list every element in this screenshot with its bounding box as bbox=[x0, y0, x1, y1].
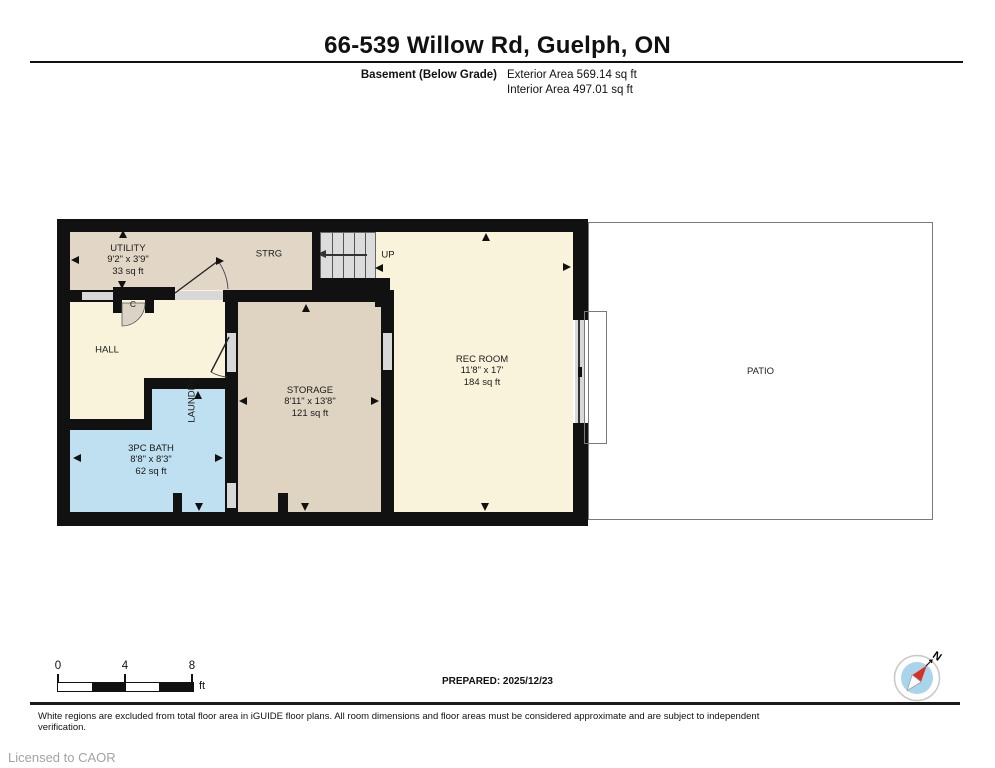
room-dims: 11'8" x 17' bbox=[456, 365, 508, 376]
dim-arrow-left-icon bbox=[239, 397, 247, 405]
closet-label: C bbox=[130, 299, 136, 309]
footer-divider bbox=[30, 702, 960, 705]
scale-tick-4: 4 bbox=[115, 660, 135, 672]
dim-arrow-up-icon bbox=[482, 233, 490, 241]
dim-arrow-left-icon bbox=[375, 264, 383, 272]
interior-area: Interior Area 497.01 sq ft bbox=[507, 84, 633, 96]
room-name: STORAGE bbox=[284, 385, 335, 396]
room-name: 3PC BATH bbox=[128, 443, 174, 454]
storage-door-arc bbox=[211, 372, 227, 377]
room-dims: 8'8" x 8'3" bbox=[128, 454, 174, 465]
room-area: 62 sq ft bbox=[128, 466, 174, 477]
dim-arrow-down-icon bbox=[301, 503, 309, 511]
disclaimer-text: White regions are excluded from total fl… bbox=[38, 711, 768, 733]
room-name: UTILITY bbox=[107, 243, 149, 254]
license-text: Licensed to CAOR bbox=[8, 750, 116, 765]
dim-arrow-up-icon bbox=[302, 304, 310, 312]
storage-door-leaf bbox=[211, 337, 229, 372]
rec-room-label: REC ROOM 11'8" x 17' 184 sq ft bbox=[456, 354, 508, 388]
room-dims: 8'11" x 13'8" bbox=[284, 396, 335, 407]
bath-label: 3PC BATH 8'8" x 8'3" 62 sq ft bbox=[128, 443, 174, 477]
dim-arrow-down-icon bbox=[118, 281, 126, 289]
room-area: 184 sq ft bbox=[456, 377, 508, 388]
dim-arrow-left-icon bbox=[71, 256, 79, 264]
scale-tick-0: 0 bbox=[48, 660, 68, 672]
strg-door-leaf bbox=[175, 261, 218, 293]
floor-name: Basement (Below Grade) bbox=[30, 69, 497, 81]
patio-label: PATIO bbox=[747, 366, 774, 377]
room-dims: 9'2" x 3'9" bbox=[107, 254, 149, 265]
dim-arrow-right-icon bbox=[371, 397, 379, 405]
room-area: 121 sq ft bbox=[284, 408, 335, 419]
strg-door-arc bbox=[218, 261, 228, 289]
utility-label: UTILITY 9'2" x 3'9" 33 sq ft bbox=[107, 243, 149, 277]
floorplan-page: 66-539 Willow Rd, Guelph, ON Basement (B… bbox=[0, 0, 995, 768]
dim-arrow-right-icon bbox=[216, 257, 224, 265]
dim-arrow-right-icon bbox=[215, 454, 223, 462]
exterior-area: Exterior Area 569.14 sq ft bbox=[507, 69, 637, 81]
header-divider bbox=[30, 61, 963, 63]
scale-tick-8: 8 bbox=[182, 660, 202, 672]
prepared-date: PREPARED: 2025/12/23 bbox=[0, 676, 995, 687]
dim-arrow-down-icon bbox=[481, 503, 489, 511]
dim-arrow-left-icon bbox=[73, 454, 81, 462]
dim-arrow-up-icon bbox=[119, 230, 127, 238]
dim-arrow-right-icon bbox=[563, 263, 571, 271]
laundry-label: LAUNDRY bbox=[186, 377, 197, 422]
room-area: 33 sq ft bbox=[107, 266, 149, 277]
patio-region: PATIO bbox=[588, 222, 933, 520]
room-name: REC ROOM bbox=[456, 354, 508, 365]
stairs-up-label: UP bbox=[381, 249, 394, 260]
hall-label: HALL bbox=[95, 344, 119, 355]
strg-label: STRG bbox=[256, 248, 282, 259]
storage-label: STORAGE 8'11" x 13'8" 121 sq ft bbox=[284, 385, 335, 419]
compass-icon: N bbox=[892, 648, 948, 704]
page-title: 66-539 Willow Rd, Guelph, ON bbox=[0, 32, 995, 60]
dim-arrow-down-icon bbox=[195, 503, 203, 511]
